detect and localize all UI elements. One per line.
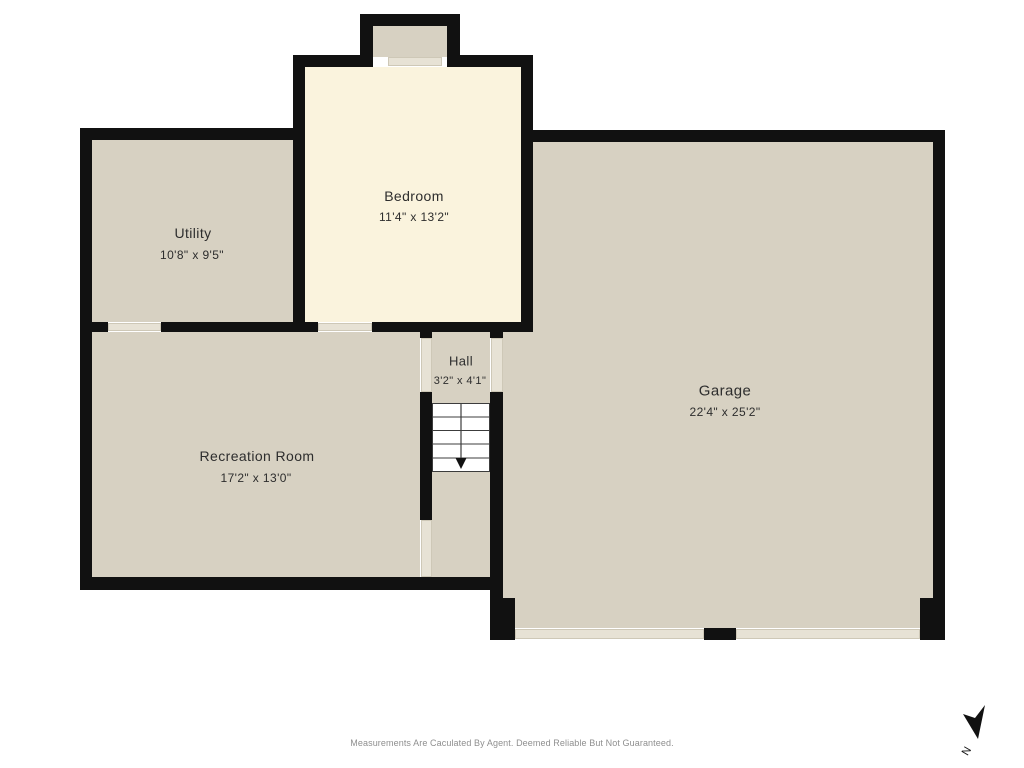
stair-landing-floor bbox=[432, 472, 490, 577]
wall-bumpout-top bbox=[360, 14, 460, 26]
wall-middle-segment-a bbox=[92, 322, 108, 332]
wall-middle-segment-b bbox=[161, 322, 318, 332]
garage-door-right bbox=[736, 629, 920, 639]
floor-plan: Utility 10'8" x 9'5" Bedroom 11'4" x 13'… bbox=[0, 0, 1024, 768]
wall-utility-bedroom bbox=[293, 55, 305, 332]
bedroom-bumpout-floor bbox=[373, 25, 447, 57]
wall-middle-segment-c bbox=[372, 322, 533, 332]
garage-dims: 22'4" x 25'2" bbox=[689, 405, 760, 419]
wall-recreation-bottom bbox=[80, 577, 503, 590]
recreation-room-label: Recreation Room bbox=[200, 448, 315, 464]
hall-dims: 3'2" x 4'1" bbox=[434, 375, 487, 387]
wall-bedroom-garage bbox=[521, 55, 533, 332]
bedroom-dims: 11'4" x 13'2" bbox=[379, 210, 449, 224]
bedroom-label: Bedroom bbox=[384, 188, 444, 204]
measurement-disclaimer: Measurements Are Caculated By Agent. Dee… bbox=[0, 738, 1024, 748]
wall-exterior-left bbox=[80, 128, 92, 590]
stairs-down bbox=[432, 403, 490, 472]
door-landing bbox=[421, 520, 432, 577]
garage-floor-upper bbox=[533, 142, 933, 332]
north-compass: N bbox=[951, 697, 995, 757]
bumpout-window-sill bbox=[388, 57, 442, 66]
wall-utility-top bbox=[80, 128, 305, 140]
utility-room-dims: 10'8" x 9'5" bbox=[160, 248, 224, 262]
recreation-room-dims: 17'2" x 13'0" bbox=[220, 471, 291, 485]
wall-hall-left bbox=[420, 392, 432, 520]
door-hall-recreation bbox=[421, 338, 432, 392]
door-bedroom bbox=[318, 323, 372, 331]
north-arrow-icon bbox=[963, 705, 985, 739]
wall-garage-top bbox=[521, 130, 945, 142]
garage-floor-main bbox=[503, 332, 933, 628]
wall-bumpout-right bbox=[447, 14, 460, 67]
wall-bumpout-left bbox=[360, 14, 373, 67]
garage-label: Garage bbox=[699, 383, 751, 400]
wall-garage-bottom-middle bbox=[704, 628, 736, 640]
garage-door-left bbox=[515, 629, 704, 639]
hall-label: Hall bbox=[449, 354, 473, 369]
wall-garage-corner-left bbox=[490, 598, 515, 640]
door-hall-garage bbox=[491, 338, 503, 392]
door-utility bbox=[108, 323, 161, 331]
wall-garage-right bbox=[933, 130, 945, 640]
wall-garage-corner-right bbox=[920, 598, 945, 640]
utility-room-label: Utility bbox=[174, 225, 211, 241]
